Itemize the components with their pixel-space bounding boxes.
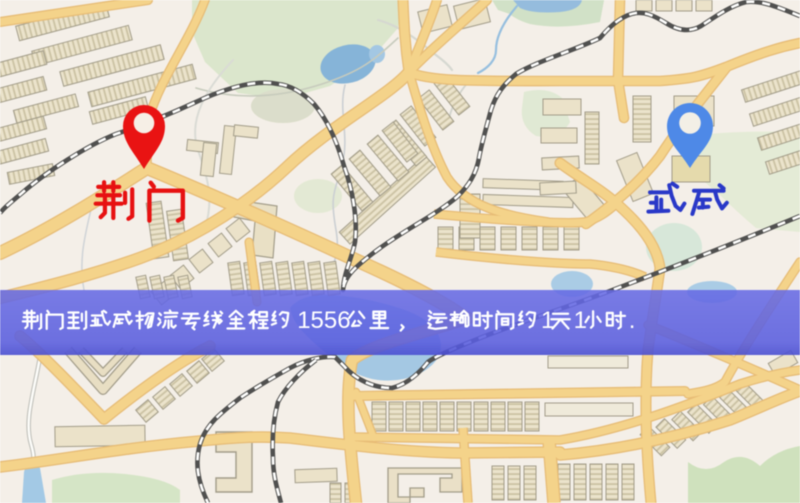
svg-text:.: . — [629, 307, 636, 334]
svg-text:1: 1 — [541, 307, 554, 334]
svg-text:1556: 1556 — [297, 307, 350, 334]
svg-text:1: 1 — [574, 307, 587, 334]
